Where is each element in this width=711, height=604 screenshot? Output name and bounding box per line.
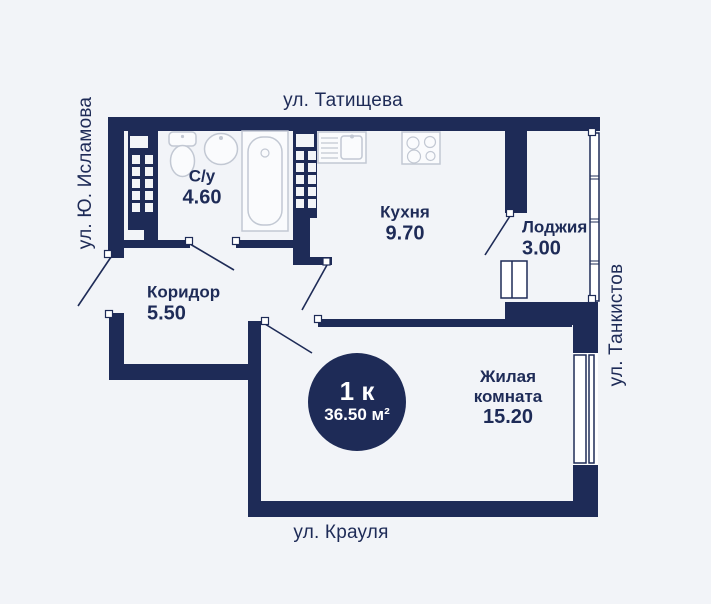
street-label-bottom: ул. Крауля (293, 522, 388, 544)
room-label-bathroom: С/у 4.60 (183, 167, 222, 210)
loggia-glazing (590, 133, 599, 301)
kitchen-sink-icon (318, 132, 366, 163)
badge-room-count: 1 к (340, 378, 375, 405)
room-label-living: Жилая комната 15.20 (457, 367, 559, 429)
badge-total-area: 36.50 м² (324, 405, 390, 425)
vent-shaft-left-cutouts (126, 136, 153, 240)
kitchen-name: Кухня (380, 203, 430, 223)
room-label-loggia: Лоджия 3.00 (522, 218, 587, 261)
bathroom-name: С/у (183, 167, 222, 187)
living-name: Жилая комната (457, 367, 559, 406)
room-label-corridor: Коридор 5.50 (147, 283, 220, 326)
street-label-right: ул. Танкистов (606, 264, 628, 387)
washbasin-icon (205, 134, 238, 165)
corridor-area: 5.50 (147, 302, 220, 325)
bathtub-icon (242, 131, 288, 231)
corridor-name: Коридор (147, 283, 220, 303)
floor-plan: ул. Татищева ул. Ю. Исламова ул. Танкист… (0, 0, 711, 604)
bathroom-area: 4.60 (183, 186, 222, 209)
living-area: 15.20 (457, 406, 559, 429)
balcony-window-block (501, 261, 527, 298)
vent-shaft-right-cutouts (296, 134, 316, 208)
kitchen-area: 9.70 (380, 222, 430, 245)
street-label-top: ул. Татищева (283, 90, 403, 112)
apartment-badge: 1 к 36.50 м² (308, 353, 406, 451)
living-room-window (573, 353, 598, 465)
room-label-kitchen: Кухня 9.70 (380, 203, 430, 246)
loggia-area: 3.00 (522, 237, 587, 260)
street-label-left: ул. Ю. Исламова (75, 97, 97, 249)
stove-icon (402, 132, 440, 164)
loggia-name: Лоджия (522, 218, 587, 238)
